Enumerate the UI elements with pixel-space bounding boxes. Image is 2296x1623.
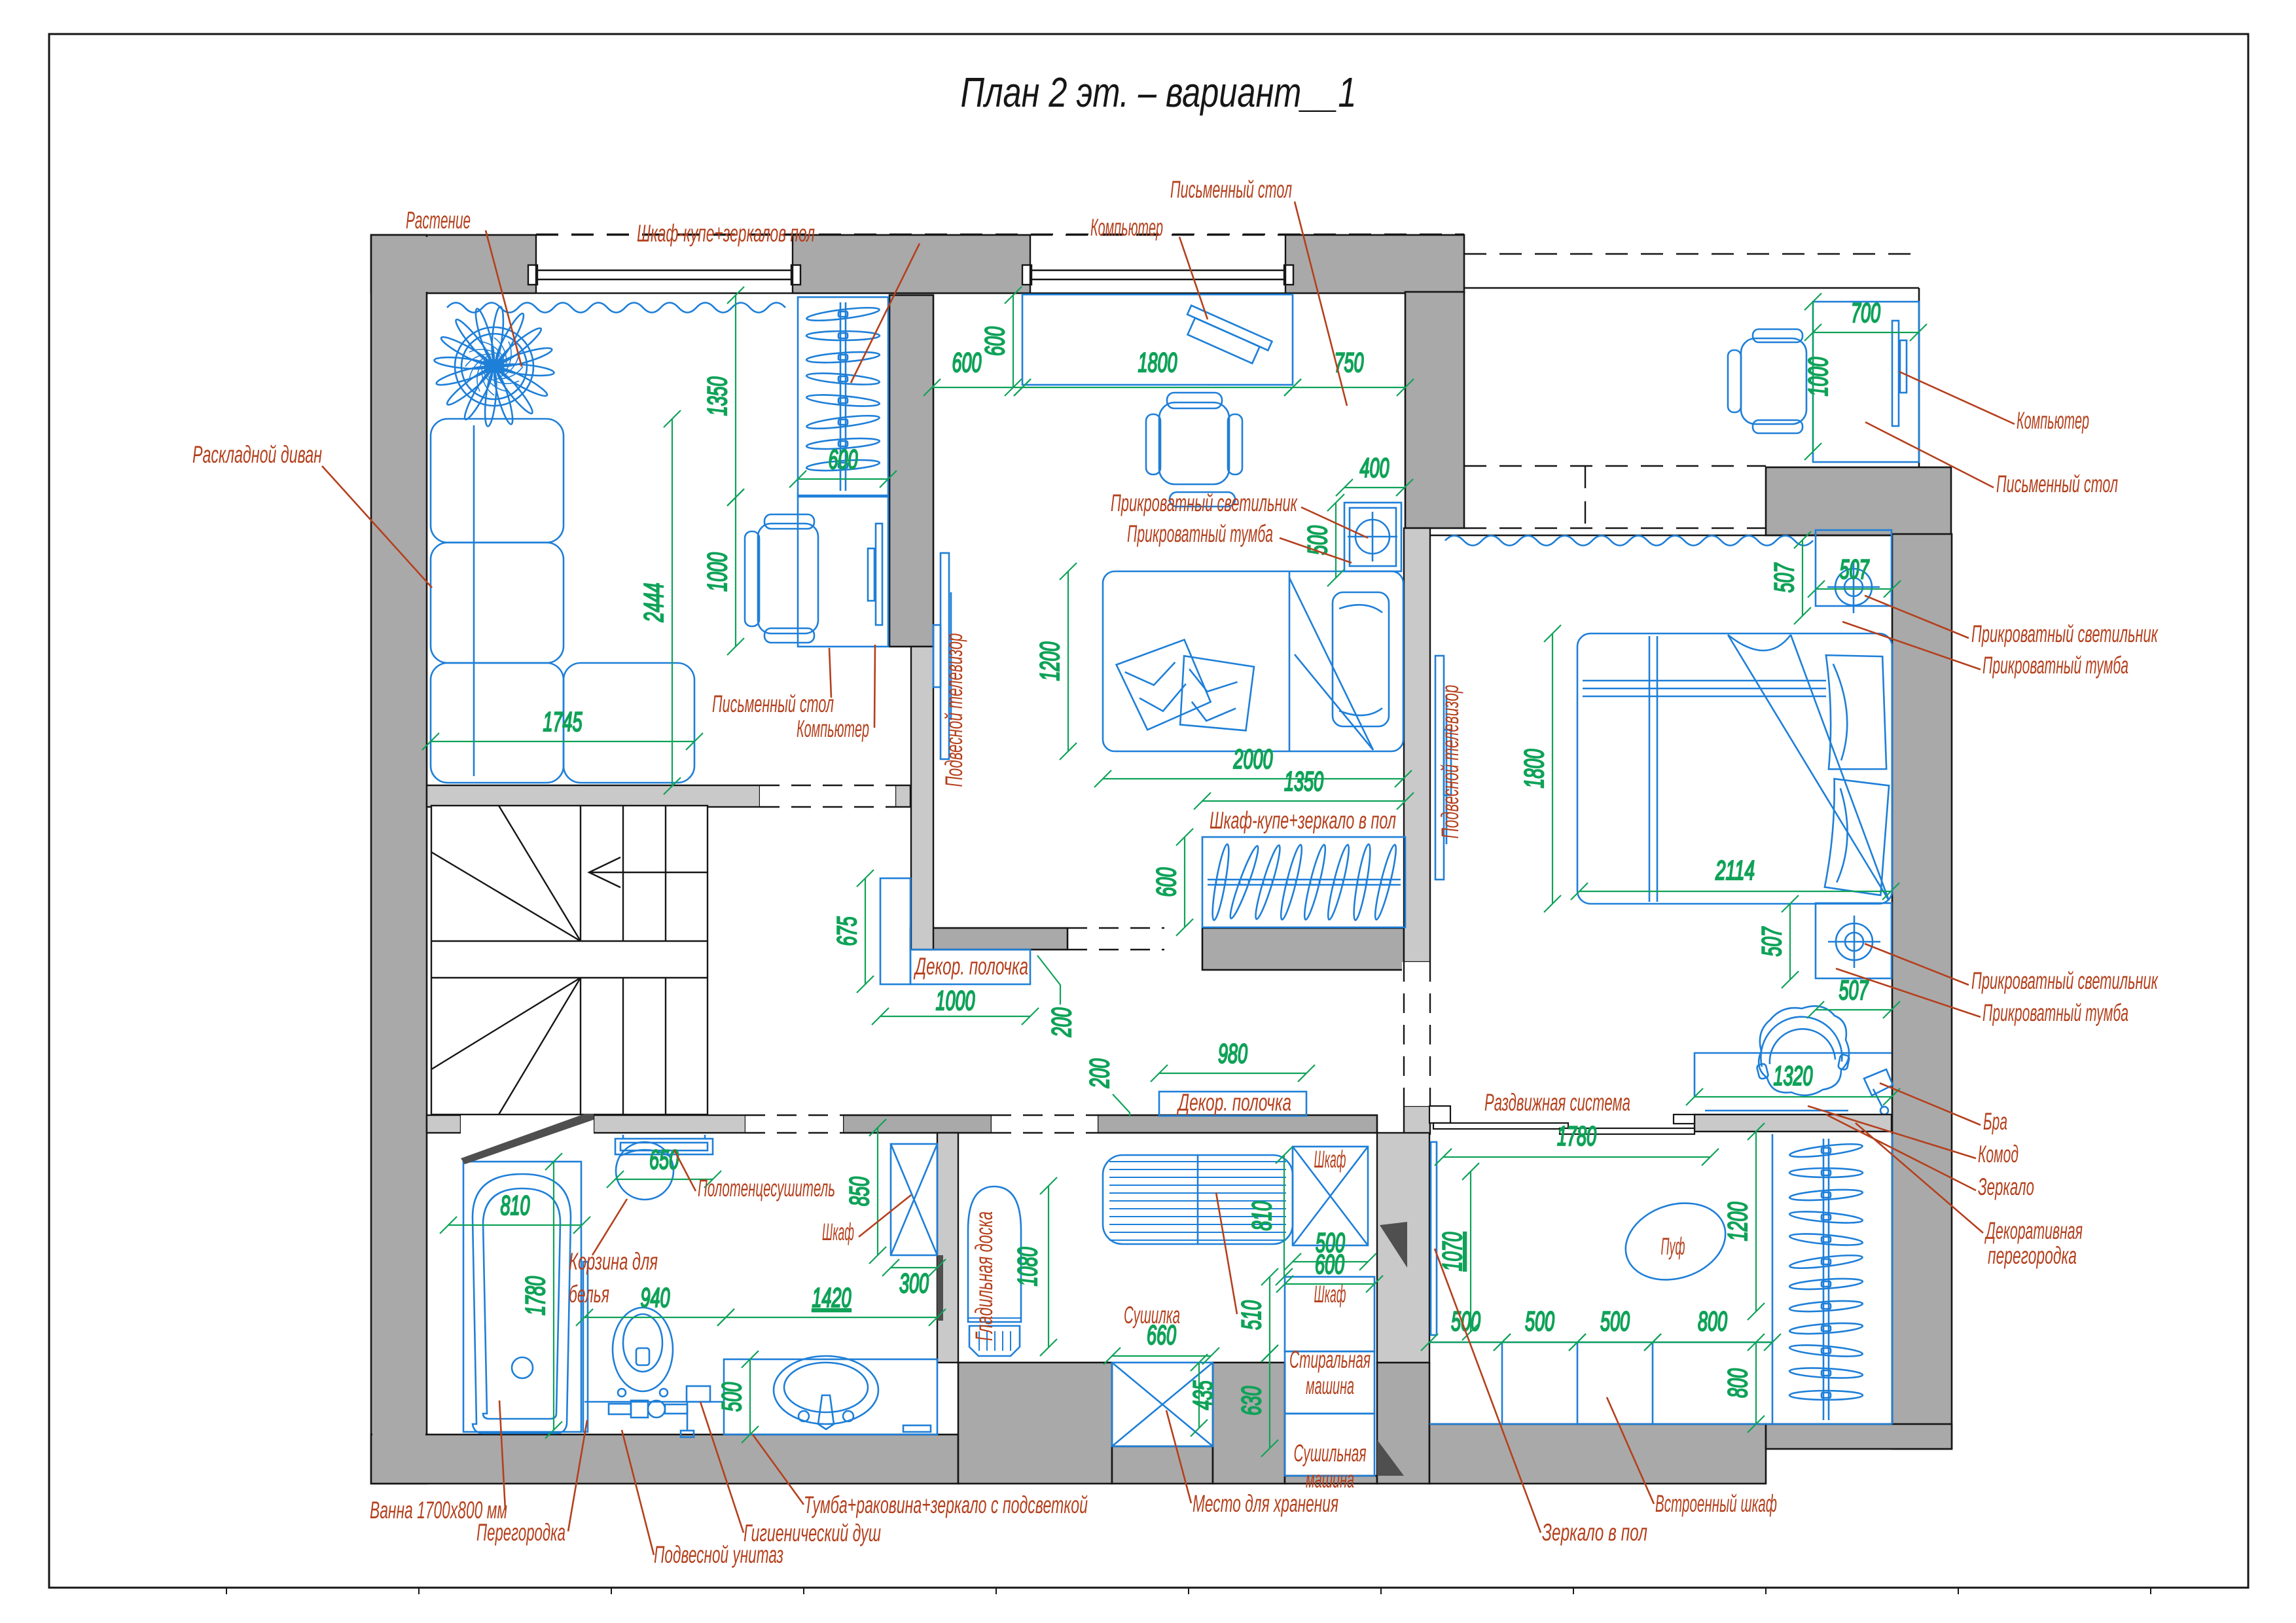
svg-text:Зеркало в пол: Зеркало в пол bbox=[1542, 1519, 1647, 1546]
svg-text:2114: 2114 bbox=[1715, 855, 1755, 885]
svg-text:Подвесной телевизор: Подвесной телевизор bbox=[941, 633, 967, 787]
svg-text:Корзина для: Корзина для bbox=[569, 1248, 658, 1275]
svg-text:1200: 1200 bbox=[1034, 641, 1065, 681]
svg-text:План 2 эт. – вариант__1: План 2 эт. – вариант__1 bbox=[961, 69, 1357, 116]
svg-text:перегородка: перегородка bbox=[1988, 1242, 2077, 1269]
svg-text:650: 650 bbox=[649, 1144, 679, 1175]
svg-text:Подвесной телевизор: Подвесной телевизор bbox=[1437, 685, 1463, 839]
svg-text:940: 940 bbox=[641, 1282, 670, 1313]
svg-text:2000: 2000 bbox=[1233, 743, 1273, 774]
svg-text:Гигиенический душ: Гигиенический душ bbox=[744, 1520, 881, 1546]
svg-text:500: 500 bbox=[1525, 1306, 1554, 1336]
svg-text:800: 800 bbox=[1722, 1368, 1753, 1398]
svg-text:Сушильная: Сушильная bbox=[1294, 1440, 1367, 1467]
svg-text:Шкаф: Шкаф bbox=[822, 1219, 854, 1245]
svg-text:200: 200 bbox=[1046, 1007, 1077, 1037]
svg-text:Комод: Комод bbox=[1978, 1141, 2018, 1168]
svg-text:Письменный стол: Письменный стол bbox=[1996, 471, 2118, 497]
svg-text:Прикроватный тумба: Прикроватный тумба bbox=[1127, 520, 1273, 547]
svg-text:1320: 1320 bbox=[1774, 1060, 1813, 1091]
svg-text:1200: 1200 bbox=[1722, 1202, 1753, 1241]
svg-text:435: 435 bbox=[1187, 1380, 1218, 1410]
svg-text:507: 507 bbox=[1756, 926, 1787, 956]
svg-text:510: 510 bbox=[1236, 1300, 1266, 1330]
svg-text:600: 600 bbox=[1151, 867, 1181, 897]
svg-text:Стиральная: Стиральная bbox=[1289, 1346, 1371, 1373]
svg-text:500: 500 bbox=[1600, 1306, 1630, 1336]
svg-text:Шкаф: Шкаф bbox=[1314, 1146, 1346, 1173]
svg-text:800: 800 bbox=[1698, 1306, 1727, 1336]
svg-text:1080: 1080 bbox=[1012, 1247, 1043, 1286]
svg-text:Пуф: Пуф bbox=[1661, 1233, 1685, 1260]
svg-text:Декор. полочка: Декор. полочка bbox=[1176, 1089, 1291, 1116]
svg-text:белья: белья bbox=[569, 1281, 609, 1308]
svg-text:507: 507 bbox=[1840, 554, 1870, 584]
svg-text:1780: 1780 bbox=[1557, 1120, 1596, 1151]
svg-text:Прикроватный светильник: Прикроватный светильник bbox=[1971, 620, 2159, 647]
svg-text:Прикроватный светильник: Прикроватный светильник bbox=[1111, 490, 1298, 516]
svg-text:Встроенный шкаф: Встроенный шкаф bbox=[1655, 1490, 1777, 1517]
svg-text:1780: 1780 bbox=[520, 1276, 550, 1315]
svg-text:810: 810 bbox=[1246, 1201, 1277, 1230]
svg-text:Зеркало: Зеркало bbox=[1978, 1173, 2034, 1200]
svg-text:Место для хранения: Место для хранения bbox=[1193, 1490, 1338, 1517]
svg-text:Декоративная: Декоративная bbox=[1984, 1217, 2083, 1244]
svg-text:630: 630 bbox=[1236, 1386, 1266, 1416]
svg-text:300: 300 bbox=[899, 1268, 929, 1298]
svg-text:Раздвижная система: Раздвижная система bbox=[1484, 1089, 1630, 1116]
svg-text:1800: 1800 bbox=[1518, 749, 1549, 788]
svg-text:1420: 1420 bbox=[812, 1282, 852, 1313]
svg-text:1350: 1350 bbox=[702, 376, 732, 416]
svg-text:Прикроватный светильник: Прикроватный светильник bbox=[1971, 967, 2159, 994]
svg-text:Тумба+раковина+зеркало с подсв: Тумба+раковина+зеркало с подсветкой bbox=[804, 1491, 1088, 1518]
svg-text:Шкаф: Шкаф bbox=[1314, 1281, 1346, 1308]
svg-text:1000: 1000 bbox=[702, 552, 732, 592]
svg-text:600: 600 bbox=[1315, 1249, 1344, 1279]
svg-text:1000: 1000 bbox=[1803, 357, 1833, 396]
svg-text:Бра: Бра bbox=[1983, 1108, 2007, 1135]
svg-text:600: 600 bbox=[952, 347, 982, 378]
svg-text:507: 507 bbox=[1839, 974, 1869, 1005]
svg-text:700: 700 bbox=[1851, 297, 1880, 328]
svg-text:Компьютер: Компьютер bbox=[1090, 214, 1163, 241]
svg-text:Сушилка: Сушилка bbox=[1124, 1302, 1180, 1329]
svg-text:Компьютер: Компьютер bbox=[2017, 407, 2089, 434]
svg-text:Компьютер: Компьютер bbox=[797, 715, 869, 742]
svg-text:400: 400 bbox=[1360, 452, 1390, 483]
svg-text:1000: 1000 bbox=[936, 985, 975, 1016]
svg-text:машина: машина bbox=[1306, 1466, 1354, 1493]
svg-text:Полотенцесушитель: Полотенцесушитель bbox=[698, 1175, 835, 1202]
svg-text:600: 600 bbox=[979, 327, 1010, 356]
svg-text:1800: 1800 bbox=[1138, 347, 1177, 378]
svg-text:Декор. полочка: Декор. полочка bbox=[913, 953, 1028, 980]
svg-text:Шкаф-купе+зеркалов пол: Шкаф-купе+зеркалов пол bbox=[637, 220, 815, 247]
svg-text:2444: 2444 bbox=[638, 583, 669, 623]
svg-text:980: 980 bbox=[1218, 1038, 1247, 1069]
svg-text:500: 500 bbox=[716, 1382, 747, 1412]
svg-text:1745: 1745 bbox=[543, 706, 583, 737]
svg-text:1350: 1350 bbox=[1284, 766, 1323, 796]
svg-text:Гладильная доска: Гладильная доска bbox=[971, 1211, 997, 1341]
svg-text:850: 850 bbox=[844, 1177, 874, 1206]
svg-text:507: 507 bbox=[1768, 562, 1799, 592]
svg-text:Перегородка: Перегородка bbox=[476, 1519, 565, 1546]
svg-text:Прикроватный тумба: Прикроватный тумба bbox=[1982, 652, 2128, 679]
svg-text:Растение: Растение bbox=[406, 207, 471, 234]
svg-text:810: 810 bbox=[501, 1190, 530, 1221]
svg-text:машина: машина bbox=[1306, 1372, 1354, 1399]
svg-text:Прикроватный тумба: Прикроватный тумба bbox=[1982, 999, 2128, 1026]
svg-text:Шкаф-купе+зеркало в пол: Шкаф-купе+зеркало в пол bbox=[1210, 807, 1396, 834]
svg-text:Письменный стол: Письменный стол bbox=[712, 690, 834, 717]
svg-text:Раскладной диван: Раскладной диван bbox=[192, 441, 322, 468]
svg-text:600: 600 bbox=[829, 444, 858, 474]
svg-text:200: 200 bbox=[1084, 1058, 1115, 1088]
svg-text:Письменный стол: Письменный стол bbox=[1170, 176, 1292, 203]
svg-text:675: 675 bbox=[831, 916, 862, 946]
